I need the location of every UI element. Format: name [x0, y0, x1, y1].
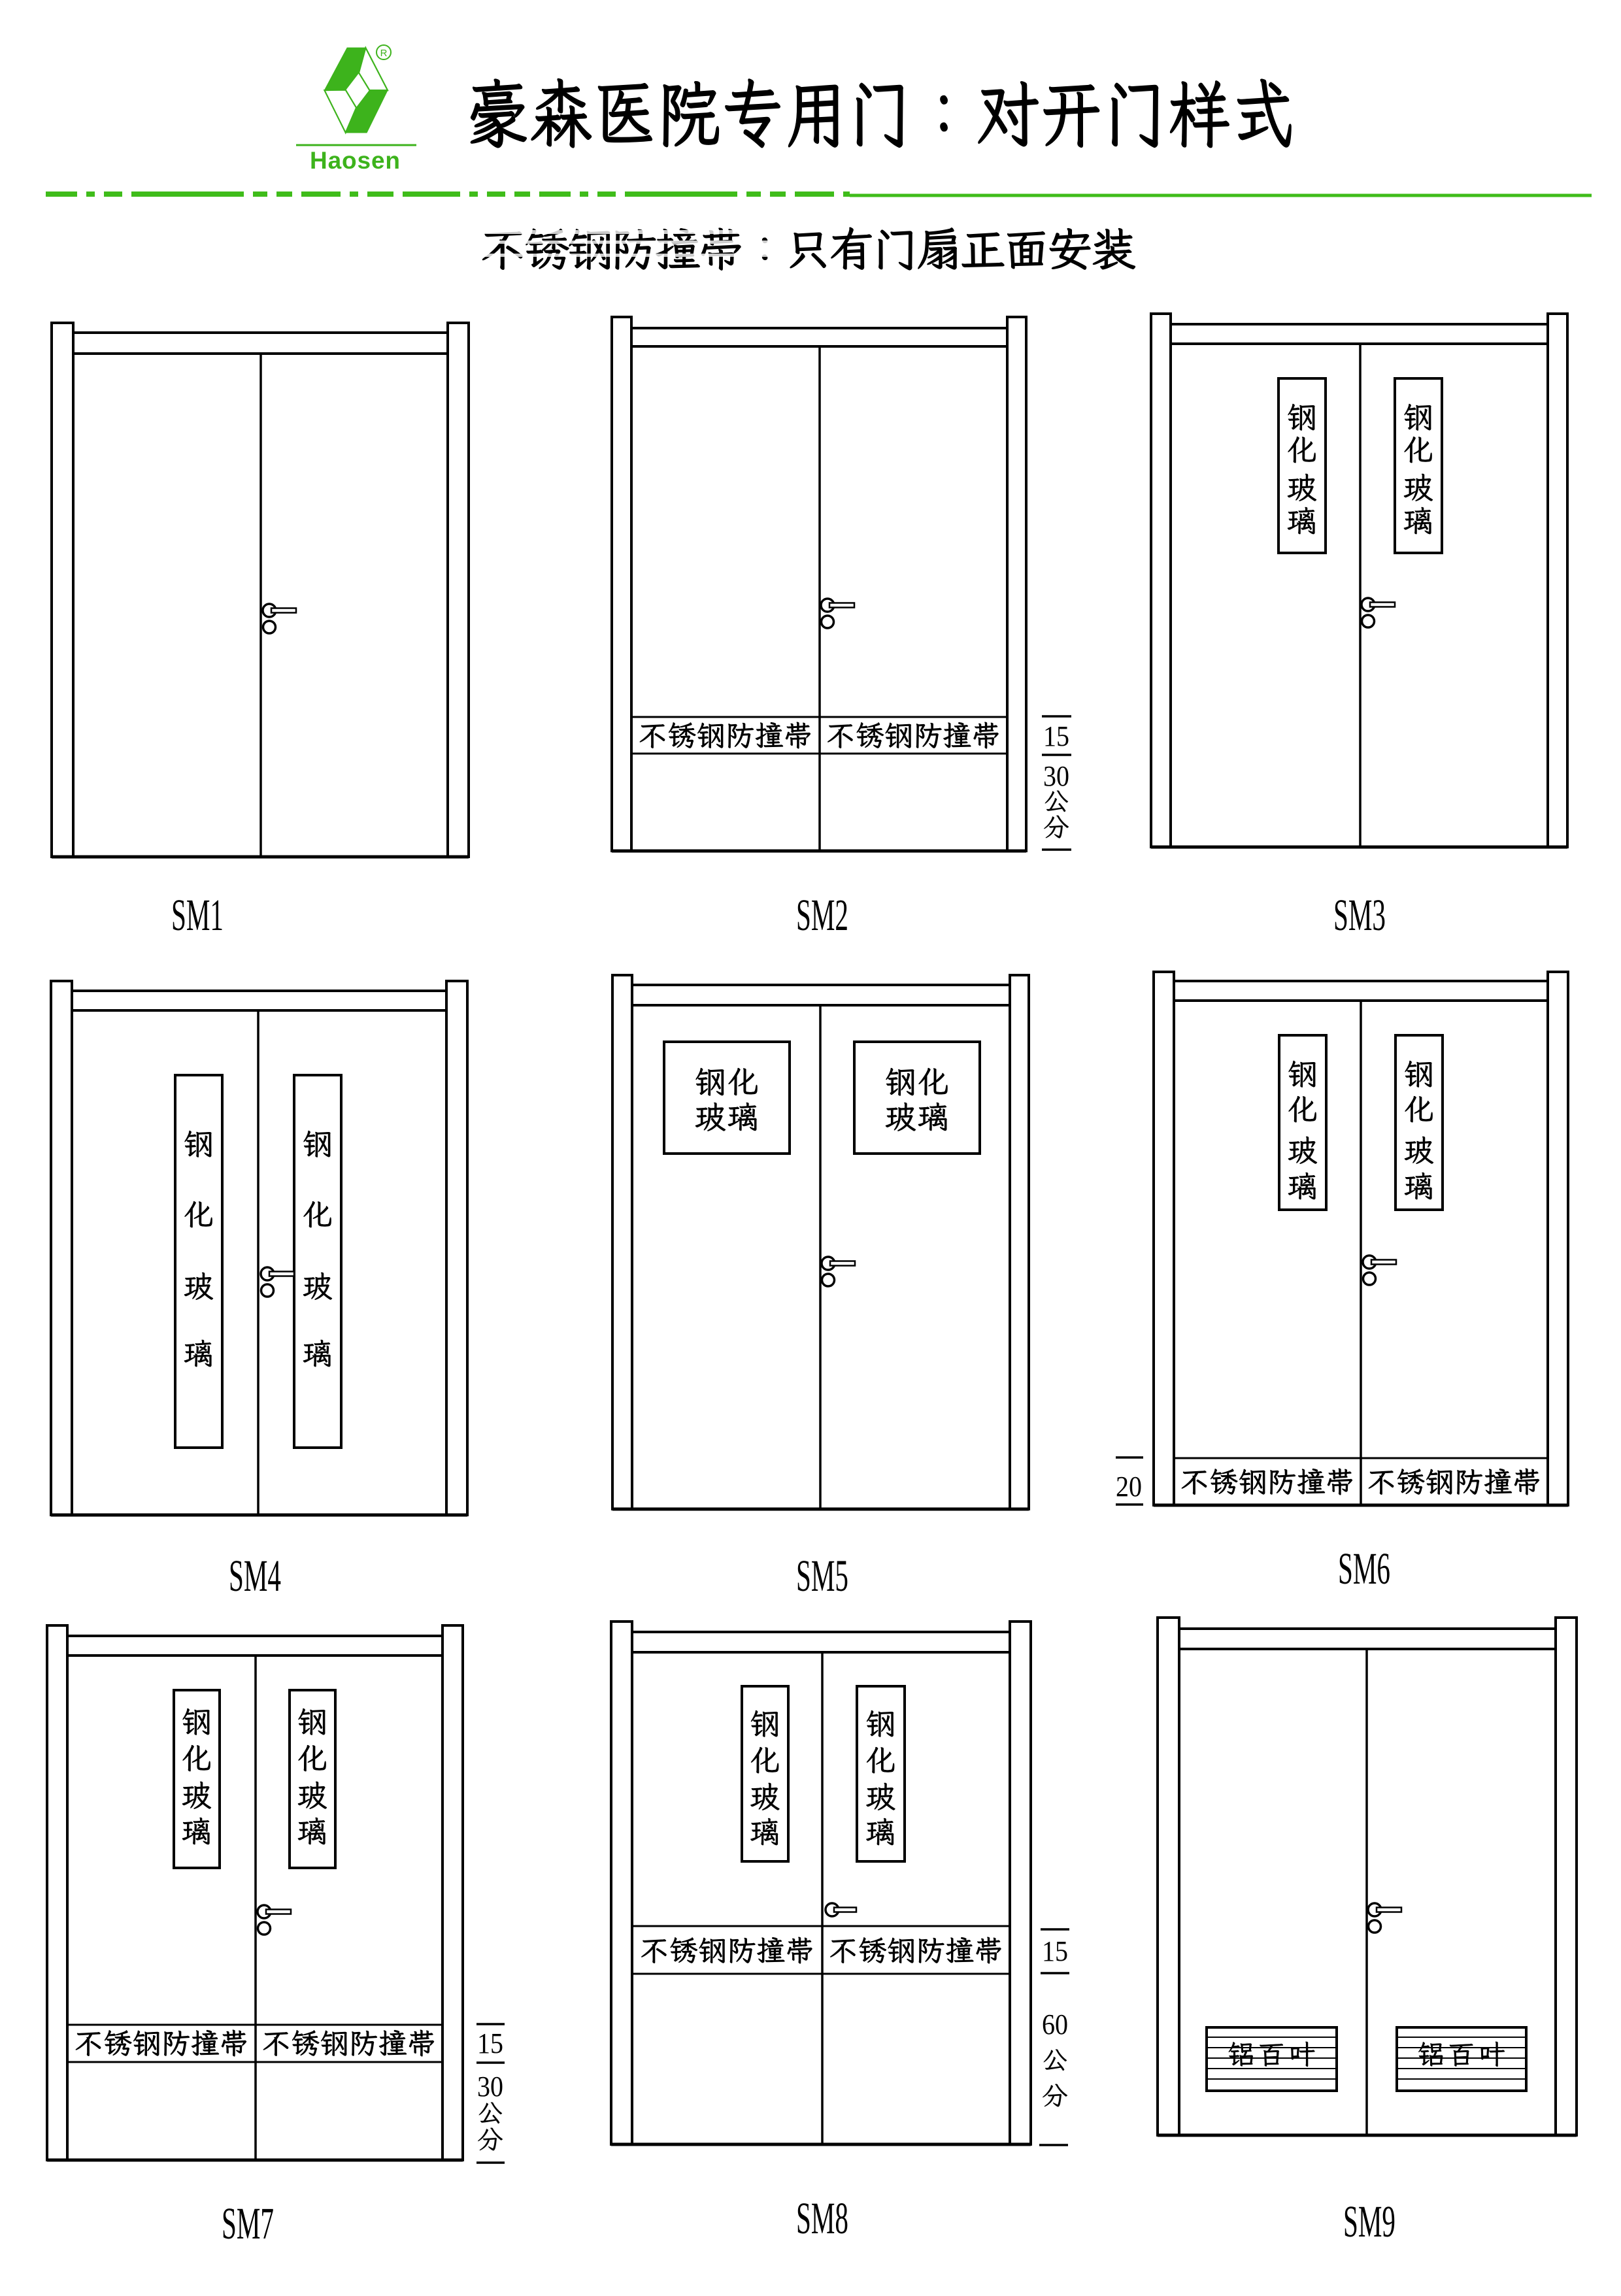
svg-text:SM7: SM7 [222, 2199, 274, 2248]
svg-text:15: 15 [477, 2027, 503, 2059]
svg-text:SM6: SM6 [1338, 1544, 1390, 1593]
svg-text:SM8: SM8 [796, 2193, 848, 2243]
svg-text:Haosen: Haosen [310, 147, 400, 174]
svg-text:SM5: SM5 [796, 1551, 848, 1601]
svg-text:SM4: SM4 [229, 1551, 281, 1601]
svg-text:15: 15 [1042, 1935, 1068, 1967]
svg-text:R: R [380, 48, 388, 59]
svg-text:SM9: SM9 [1343, 2197, 1395, 2246]
svg-text:SM3: SM3 [1333, 890, 1386, 940]
svg-text:SM1: SM1 [171, 890, 224, 940]
svg-text:20: 20 [1116, 1471, 1142, 1503]
svg-text:30: 30 [1043, 760, 1069, 792]
svg-text:60: 60 [1042, 2008, 1068, 2040]
svg-text:30: 30 [477, 2071, 503, 2103]
svg-text:SM2: SM2 [796, 890, 848, 940]
svg-text:15: 15 [1043, 720, 1069, 752]
